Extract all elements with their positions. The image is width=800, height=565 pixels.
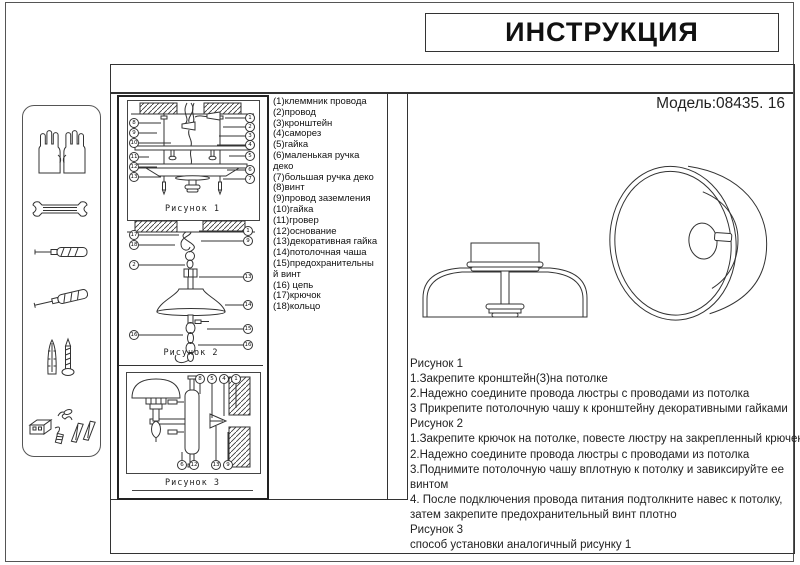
instruction-sheet: { "page": { "title": "ИНСТРУКЦИЯ", "mode… [0,0,800,565]
callout: 9 [243,236,253,246]
instruction-line: 3 Прикрепите потолочную чашу к кронштейн… [410,402,790,417]
callout: 1 [231,374,241,384]
instruction-line: затем закрепите предохранительный винт п… [410,508,790,523]
callout: 10 [129,138,139,148]
callout: 4 [219,374,229,384]
figure-3-caption: Рисунок 3 [132,478,253,491]
instruction-line: Рисунок 1 [410,357,790,372]
callout: 9 [223,460,233,470]
instructions-text: Рисунок 11.Закрепите кронштейн(3)на пото… [410,357,790,553]
callout: 16 [129,330,139,340]
figure-1-callouts: 8 9 10 11 12 13 1 2 3 4 5 6 7 [127,100,258,219]
instruction-line: 3.Поднимите потолочную чашу вплотную к п… [410,463,790,478]
callout: 15 [243,324,253,334]
anchor-screw-icon [43,338,79,380]
instruction-line: винтом [410,478,790,493]
callout: 17 [129,230,139,240]
instruction-line: 2.Надежно соедините провода люстры с про… [410,448,790,463]
column-divider-1 [387,93,388,500]
column-divider-2 [407,93,408,500]
fasteners-icon [28,408,94,448]
callout: 13 [129,172,139,182]
lamp-side-view [423,243,587,317]
parts-list: (1)клеммник провода(2)провод(3)кронштейн… [273,97,379,313]
callout: 2 [129,260,139,270]
screwdriver-angled-icon [30,287,94,311]
callout: 13 [211,460,221,470]
instruction-line: 4. После подключения провода питания под… [410,493,790,508]
part-item: (11)гровер [273,216,379,227]
callout: 9 [129,128,139,138]
instruction-line: Рисунок 3 [410,523,790,538]
callout: 14 [243,300,253,310]
part-item: (6)маленькая ручка деко [273,151,379,173]
callout: 8 [129,118,139,128]
figure-2-callouts: 17 18 2 16 1 9 13 14 15 16 [119,219,263,365]
table-header-divider [110,92,793,94]
callout: 13 [243,272,253,282]
callout: 16 [243,340,253,350]
instruction-line: 2.Надежно соедините провода люстры с про… [410,387,790,402]
part-item: (18)кольцо [273,302,379,313]
instruction-line: 1.Закрепите крючок на потолке, повесте л… [410,432,790,447]
callout: 5 [245,151,255,161]
instruction-line: 1.Закрепите кронштейн(3)на потолке [410,372,790,387]
callout: 4 [245,140,255,150]
gloves-icon [36,128,88,174]
product-drawings [410,140,785,350]
callout: 12 [189,460,199,470]
callout: 6 [177,460,187,470]
figure-divider [119,365,263,366]
callout: 7 [245,174,255,184]
callout: 12 [129,162,139,172]
figure-1-caption: Рисунок 1 [127,204,258,214]
callout: 8 [195,374,205,384]
callout: 1 [243,226,253,236]
model-label: Модель:08435. 16 [410,95,785,113]
figure-2-caption: Рисунок 2 [119,348,263,358]
wrench-icon [32,200,88,218]
screwdriver-icon [33,245,91,259]
callout: 11 [129,152,139,162]
callout: 18 [129,240,139,250]
figure-3-callouts: 8 5 4 1 6 12 13 9 [126,372,259,472]
callout: 5 [207,374,217,384]
instruction-line: способ установки аналогичный рисунку 1 [410,538,790,553]
part-item: (15)предохранительный винт [273,259,379,281]
page-title: ИНСТРУКЦИЯ [425,13,779,52]
instruction-line: Рисунок 2 [410,417,790,432]
lamp-angle-view [602,157,774,327]
part-item: (2)провод [273,108,379,119]
